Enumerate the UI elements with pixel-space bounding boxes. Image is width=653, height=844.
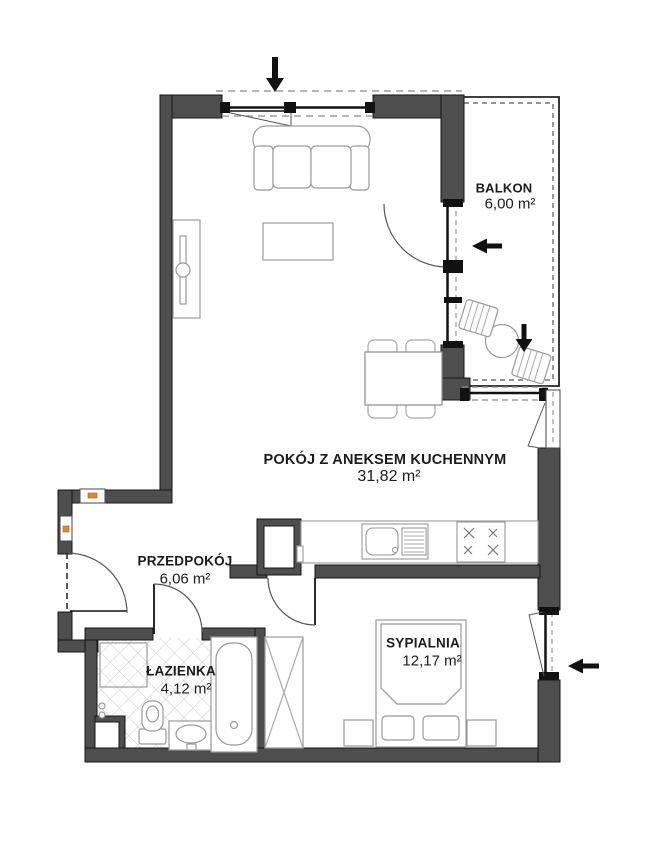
counter-seam: [297, 546, 303, 562]
bedroom-door: [268, 578, 315, 625]
wall-bedroom-right: [315, 565, 540, 578]
balcony-door-arc: [384, 204, 447, 267]
bathroom-sink: [169, 721, 214, 750]
room-area-living: 31,82 m²: [357, 468, 420, 486]
wall-right-lower: [538, 680, 560, 762]
bedroom-window: [529, 607, 559, 680]
wall-living-left: [160, 95, 172, 503]
wall-bath-top-left: [85, 628, 153, 640]
floor-plan-page: POKÓJ Z ANEKSEM KUCHENNYM 31,82 m² BALKO…: [0, 0, 653, 844]
room-label-bedroom: SYPIALNIA: [386, 636, 460, 651]
living-room-furniture: [173, 126, 442, 418]
entrance-door: [67, 553, 127, 613]
balcony-furniture: [458, 299, 551, 384]
wardrobe: [265, 637, 303, 748]
coffee-table: [263, 223, 333, 260]
sofa: [253, 126, 370, 190]
balcony-chair: [511, 346, 551, 384]
arrow-left-icon: [568, 659, 599, 674]
kitchen-window: [460, 387, 560, 448]
bathroom-door: [154, 584, 202, 634]
room-area-bathroom: 4,12 m²: [161, 681, 212, 698]
kitchen-sink: [362, 524, 428, 559]
dining-set: [365, 340, 442, 418]
arrow-down-icon: [266, 57, 284, 92]
room-area-hall: 6,06 m²: [160, 571, 211, 588]
toilet: [139, 701, 166, 744]
room-label-balcony: BALKON: [476, 181, 533, 196]
floor-plan-canvas: [0, 0, 653, 844]
valve: [99, 703, 105, 709]
balcony-window: [443, 266, 463, 348]
room-label-hall: PRZEDPOKÓJ: [137, 554, 232, 569]
nightstand: [467, 720, 496, 746]
room-area-bedroom: 12,17 m²: [402, 653, 461, 670]
wall-hall-top: [58, 490, 172, 503]
dining-table: [365, 352, 442, 405]
pillow: [423, 716, 459, 740]
arrow-left-icon: [472, 239, 502, 254]
room-label-living: POKÓJ Z ANEKSEM KUCHENNYM: [264, 452, 507, 468]
wall-balcony-divider-upper: [441, 95, 464, 202]
stove: [457, 522, 505, 562]
room-label-bathroom: ŁAZIENKA: [146, 664, 216, 679]
kitchen-fixtures: [297, 521, 538, 563]
pillow: [382, 716, 414, 740]
room-area-balcony: 6,00 m²: [485, 196, 536, 213]
bedroom-furniture: [265, 620, 496, 748]
balcony-door: [384, 199, 463, 268]
nightstand: [344, 720, 373, 746]
valve: [99, 712, 105, 718]
tv-cabinet: [173, 220, 200, 318]
bathtub: [211, 637, 257, 752]
wall-right-mid: [538, 448, 560, 610]
wall-bottom: [85, 748, 560, 762]
